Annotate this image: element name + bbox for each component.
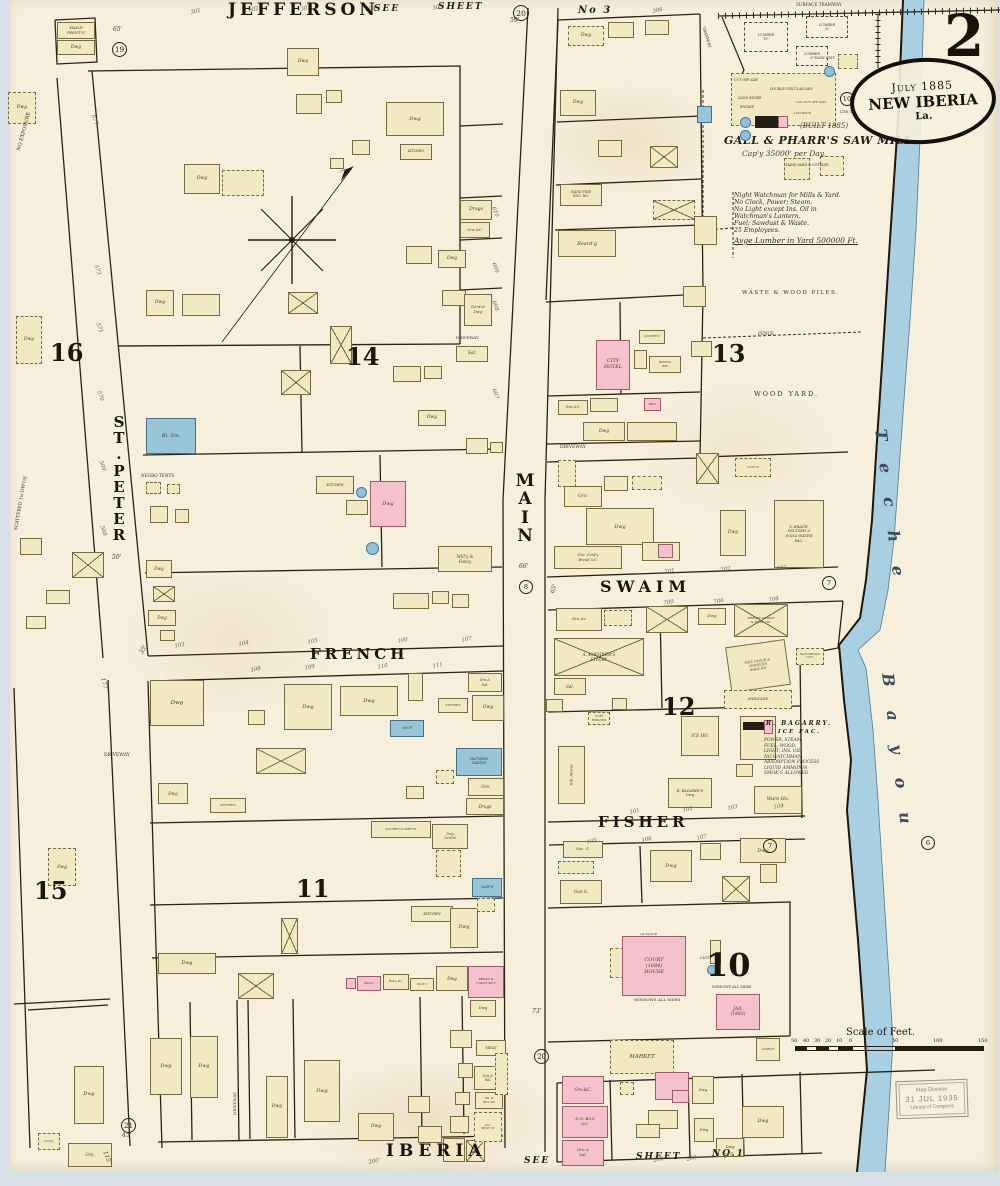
scale-bar-segment — [817, 1046, 828, 1051]
building: KITCHEN — [639, 330, 665, 344]
building-label: SHOP — [391, 721, 423, 736]
building: LUMBER6' — [806, 16, 848, 38]
street-name: JEFFERSON — [228, 0, 379, 20]
building-label: MATTRESSMAKING — [457, 749, 501, 775]
building — [612, 698, 627, 710]
building-label: LUMBER6' — [807, 17, 847, 37]
building: Gro.&Sal. — [468, 673, 502, 692]
building-label: Dwg — [75, 1067, 103, 1123]
carriage-house: CARR'GE — [756, 1038, 780, 1061]
reference-circle: 7 — [763, 839, 777, 853]
building — [558, 460, 576, 487]
building-label: Bak'g Ho. — [384, 975, 408, 989]
building-label: KITCHEN — [401, 145, 431, 159]
building-label: Dwg — [58, 41, 94, 54]
building: Drugs — [466, 798, 504, 815]
street-name: FISHER — [598, 813, 689, 831]
building — [406, 786, 424, 799]
building: Gro.&C. — [558, 400, 588, 415]
cistern-icon — [740, 117, 751, 128]
millinery-fancy-store: Mill'y &Fancy — [438, 546, 492, 572]
scale-bar-segment — [940, 1046, 984, 1051]
block-number: 16 — [50, 338, 83, 367]
building: Gro.&c — [556, 608, 602, 631]
building — [558, 861, 594, 874]
building — [477, 898, 495, 912]
building — [175, 509, 189, 523]
building — [658, 544, 673, 558]
building-label: ICE HO. — [682, 717, 718, 755]
building — [288, 292, 318, 314]
building — [700, 843, 721, 860]
building — [150, 506, 168, 523]
building: Dwg — [586, 508, 654, 545]
building: Kitch'n — [410, 978, 434, 991]
map-label: ICE FAC. — [778, 729, 821, 736]
building: KITCHEN — [400, 144, 432, 160]
building — [248, 710, 265, 725]
building — [160, 630, 175, 641]
building — [490, 442, 503, 453]
building — [450, 1116, 469, 1133]
building-label: KITCHEN — [439, 699, 467, 712]
cistern-icon — [356, 487, 367, 498]
map-label: 66' — [519, 563, 528, 571]
ice-house: ICE HO. — [681, 716, 719, 756]
building — [326, 90, 342, 103]
building-label: Dwg — [371, 482, 405, 526]
building: Gro.&C. — [562, 1076, 604, 1104]
building-label: SALT, FLOUR &SHINGLESWARE HO. — [726, 640, 790, 692]
building — [691, 341, 712, 357]
building-label: Dwg — [159, 784, 187, 803]
building-label: Dwg — [341, 687, 397, 715]
map-label: NEGRO TENTS — [141, 473, 174, 478]
building — [452, 594, 469, 608]
scale-bar-segment — [806, 1046, 817, 1051]
building-label: Dwg — [437, 967, 467, 990]
building: Dwg — [304, 1060, 340, 1122]
saw-mill-notes: Night Watchman for Mills & Yard.No Clock… — [734, 192, 858, 245]
market: MARKET — [610, 1040, 674, 1074]
building: Sal. — [456, 346, 488, 362]
building-label: Dwg — [147, 291, 173, 315]
building-label: SHINGLES — [725, 691, 791, 708]
building: Dwg — [650, 850, 692, 882]
map-label: SEE — [524, 1156, 550, 1167]
building-label: Gun S. — [561, 881, 601, 903]
wood-yard-label: WOOD YARD. — [754, 390, 819, 398]
building-label: A. KOEHNER'SLIVERY — [555, 639, 643, 675]
building: Dwg — [694, 1118, 714, 1142]
building-label: Dwg — [9, 93, 35, 123]
boarding-house: Board'g — [558, 230, 616, 257]
building-label: COTT'G — [736, 459, 770, 476]
map-label: ENGINE — [740, 105, 754, 109]
building — [608, 22, 634, 38]
building: KITCHEN & SERV'TS — [371, 821, 431, 838]
building: Dwg — [386, 102, 444, 136]
map-label: DOUBLE CIRCULAR SAW — [770, 87, 812, 91]
map-label: WINDOWS ALL SIDES — [712, 985, 751, 989]
scale-number: 0 — [849, 1038, 852, 1044]
scale-number: 10 — [836, 1038, 842, 1044]
building-label: CARP'R — [473, 879, 501, 896]
private-stable-warehouse: PRIVATE STABLE& WARE HO. — [734, 604, 788, 637]
jail: JAIL(1883) — [716, 994, 760, 1030]
building-label: PRIVATE STABLE& WARE HO. — [735, 605, 787, 636]
scale-number: 40 — [803, 1038, 809, 1044]
reference-circle: 7 — [822, 576, 836, 590]
building-label: Dwg — [471, 1001, 495, 1016]
hand-printing: HANDPRINT'G — [57, 22, 95, 39]
building-label: Vac. G. — [564, 842, 602, 857]
map-label: 65' — [113, 26, 122, 34]
building — [604, 610, 632, 626]
building: Gro.&Sal. — [562, 1140, 604, 1166]
building — [722, 876, 750, 902]
building-label: Gro.&c — [557, 609, 601, 630]
reference-circle: 21 — [121, 1118, 136, 1133]
building-label: COURT(1884)HOUSE — [623, 937, 685, 995]
building: Dwg — [470, 1000, 496, 1017]
grocery-confectionery: Gro. Conf'yBread &C. — [554, 546, 622, 569]
scale-number: 30 — [814, 1038, 820, 1044]
koehner-livery: A. KOEHNER'SLIVERY — [554, 638, 644, 676]
building — [632, 476, 662, 490]
carpenter-shop: CARP'R — [472, 878, 502, 897]
block-number: 12 — [662, 692, 695, 721]
building — [634, 350, 647, 369]
building-label: Dwg — [651, 851, 691, 881]
building — [281, 370, 311, 395]
building: BK'Y — [644, 398, 661, 411]
building — [256, 748, 306, 774]
building — [408, 1096, 430, 1113]
scale-bar-segment — [839, 1046, 852, 1051]
building: Dwg — [742, 1106, 784, 1138]
bayou-water — [839, 0, 924, 1172]
bagarry-ice-factory-name: R. BAGARRY. — [766, 720, 832, 728]
reference-circle: 6 — [921, 836, 935, 850]
building-label: R. BAGARRY'SDwg — [669, 779, 711, 807]
building — [20, 538, 42, 555]
building-label: Dent'stDwg — [465, 295, 491, 325]
building: Dwg — [8, 92, 36, 124]
building — [408, 673, 423, 701]
building: Dwg — [184, 164, 220, 194]
cistern-icon — [740, 130, 751, 141]
building-label: Dwg — [721, 511, 745, 555]
building-label: CARR'GE — [757, 1039, 779, 1060]
building: KITCHEN — [438, 698, 468, 713]
building — [393, 593, 429, 609]
building-label: Dwg — [439, 251, 465, 267]
blacksmith-shop: Bl. Sm. — [146, 418, 196, 454]
building-label: Dwg — [561, 91, 595, 115]
building — [650, 146, 678, 168]
street-name: ST.PETER — [106, 414, 132, 544]
bread-cakes-bakery: BREAD &CAKES BK'Y — [468, 966, 504, 998]
street-name: MAIN — [512, 472, 538, 545]
scale-title: Scale of Feet. — [846, 1027, 915, 1038]
salt-flour-shingles-warehouse: SALT, FLOUR &SHINGLESWARE HO. — [725, 639, 791, 693]
court-house: COURT(1884)HOUSE — [622, 936, 686, 996]
building-label: HAND FIREENG. HO. — [561, 185, 601, 205]
building-label: Drugs — [461, 201, 491, 219]
reference-circle: 19 — [112, 42, 127, 57]
building — [222, 170, 264, 196]
building: Gro.MEAT ST. — [474, 1112, 502, 1142]
building-label: LUMBER10' — [745, 23, 787, 51]
scale-bar-segment — [795, 1046, 806, 1051]
building-label: KITCHEN — [412, 907, 452, 921]
reference-circle: 20 — [534, 1049, 549, 1064]
building: Dwg — [438, 250, 466, 268]
building-label: DININGRM — [650, 357, 680, 372]
building-label: Dwg — [305, 1061, 339, 1121]
building — [432, 591, 449, 604]
building — [352, 140, 370, 155]
building-label: Kitch'n — [411, 979, 433, 990]
street-name: SWAIM — [600, 577, 691, 596]
building — [466, 438, 488, 454]
building-label: BREAD &CAKES BK'Y — [469, 967, 503, 997]
building-label: SH. &BILL'DS — [476, 1093, 502, 1108]
building — [694, 216, 717, 245]
building: KITCHEN — [210, 798, 246, 813]
building: Dwg — [358, 1113, 394, 1141]
building-label: Dwg — [147, 561, 171, 577]
building: Gro. — [468, 778, 504, 796]
building-label: Dwg — [419, 411, 445, 425]
building — [696, 453, 719, 484]
building-label: Dwg — [191, 1037, 217, 1097]
sanborn-map: HANDPRINT'GDwgDwgDwgDwgDwgKITCHENDwgDwgD… — [0, 0, 1000, 1186]
building — [645, 20, 669, 35]
building-label: Gro. — [469, 779, 503, 795]
building: Dwg — [266, 1076, 288, 1138]
building: Dwg — [16, 316, 42, 364]
building — [436, 850, 461, 877]
building-label: Gro. Conf'yBread &C. — [555, 547, 621, 568]
building — [546, 699, 563, 712]
building-label: Dwg — [695, 1119, 713, 1141]
building-label: Gro.&Sal. — [469, 674, 501, 691]
cistern-icon — [366, 542, 379, 555]
building — [838, 54, 858, 69]
building: Sal. — [554, 678, 586, 695]
building — [627, 422, 677, 441]
building: DwgDent'st — [432, 824, 468, 849]
building — [436, 770, 454, 784]
building — [346, 978, 356, 989]
map-label: SURFACE TRAMWAY — [796, 2, 842, 7]
building: SHOP — [390, 720, 424, 737]
building — [450, 1030, 472, 1048]
building-label: Bl. Sm. — [147, 419, 195, 453]
building — [683, 286, 706, 307]
building: HAND SHINGLECOTT. — [796, 648, 824, 665]
building-label: Dwg — [693, 1077, 713, 1103]
map-label: 1st FLOOR — [640, 933, 657, 937]
building-label: Dwg — [285, 685, 331, 729]
building — [590, 398, 618, 412]
library-stamp: Map Division 31 JUL 1935 Library of Cong… — [895, 1079, 968, 1119]
building-label: BK'Y — [645, 399, 660, 410]
building-label: Board'g — [559, 231, 615, 256]
building-label: BAK'G — [358, 977, 380, 990]
building-label: Dwg — [151, 681, 203, 725]
building — [636, 1124, 660, 1138]
building — [697, 106, 712, 123]
building-label: Dwg — [151, 1039, 181, 1094]
building — [672, 1090, 689, 1103]
map-label: CUT OFF SAW — [734, 78, 758, 82]
building — [281, 918, 298, 954]
building: Dwg — [57, 40, 95, 55]
dentist-dwelling: Dent'stDwg — [464, 294, 492, 326]
building: BAK'G — [357, 976, 381, 991]
map-label: (BUILT 1885) — [800, 122, 848, 131]
map-label: DRIVEWAY — [456, 335, 479, 340]
building — [46, 590, 70, 604]
building: (OLD) — [38, 1133, 60, 1150]
building: COTT'G — [735, 458, 771, 477]
scale-bar-segment — [828, 1046, 839, 1051]
building-label: Gro.MEAT ST. — [475, 1113, 501, 1141]
building: Dwg — [340, 686, 398, 716]
block-number: 14 — [346, 342, 379, 371]
map-label: LOG CUT OFF SAW — [796, 101, 826, 105]
building — [393, 366, 421, 382]
pink-dwelling: Dwg — [370, 481, 406, 527]
drug-store: Drugs — [460, 200, 492, 220]
building-label: Sal. — [457, 347, 487, 361]
building: Dwg — [472, 695, 504, 721]
building: DININGRM — [649, 356, 681, 373]
map-label: 45' — [122, 1132, 131, 1140]
building — [238, 973, 274, 999]
building: Dwg — [148, 610, 176, 626]
stamp-line: Library of Congress — [897, 1103, 967, 1112]
map-linework — [0, 0, 1000, 1186]
building — [442, 290, 466, 306]
map-label: LOG DECK — [794, 112, 811, 116]
building: Dwg — [720, 510, 746, 556]
building — [778, 116, 788, 128]
building-label: Sal. — [555, 679, 585, 694]
building-label: MARKET — [611, 1041, 673, 1073]
building-label: HAND SHINGLECOTT. — [797, 649, 823, 664]
building: Bak'g Ho. — [383, 974, 409, 990]
building-label: Dwg — [451, 909, 477, 947]
building-label: Gro. — [565, 487, 601, 506]
building — [784, 158, 810, 180]
building-label: Drugs — [467, 799, 503, 814]
building-label: (OLD) — [39, 1134, 59, 1149]
map-label: TANK CIST. — [814, 56, 835, 60]
building — [424, 366, 442, 379]
mattress-making: MATTRESSMAKING — [456, 748, 502, 776]
building-label: Dwg — [584, 423, 624, 440]
building-label: Dwg — [587, 509, 653, 544]
building-label: Dwg — [387, 103, 443, 135]
reference-circle: 20 — [513, 5, 529, 21]
map-label: Cap'y 35000' per Day. — [742, 149, 825, 158]
building: Gro.&C. — [460, 222, 490, 238]
building: Gun S. — [560, 880, 602, 904]
map-label: 50' — [112, 554, 121, 562]
scale-bar-segment — [896, 1046, 940, 1051]
building-label: Dwg — [159, 954, 215, 973]
building: Dwg — [158, 783, 188, 804]
building-label: CITYHOTEL — [597, 341, 629, 389]
building-label: Dwg — [267, 1077, 287, 1137]
building-label: Dwg — [473, 696, 503, 720]
building-label: Dwg — [149, 611, 175, 625]
scale-number: 50 — [892, 1038, 898, 1044]
building — [604, 476, 628, 491]
block-number: 15 — [34, 876, 67, 905]
map-label: POWER; STEAM.FUEL; WOOD.LIGHT; INS. OIL.… — [764, 738, 819, 777]
building — [646, 606, 688, 633]
map-label: GANG EDGER — [738, 96, 761, 100]
building — [346, 500, 368, 515]
map-label: DRIVEWAY — [232, 1092, 237, 1115]
block-number: 13 — [712, 339, 745, 368]
scale-number: 50 — [791, 1038, 797, 1044]
scale-number: 100 — [933, 1038, 943, 1044]
building: Dwg — [190, 1036, 218, 1098]
building — [406, 246, 432, 264]
building — [620, 1082, 634, 1095]
building — [146, 482, 161, 494]
building: D.G. B&S&C. — [562, 1106, 608, 1138]
building-label: Dwg — [743, 1107, 783, 1137]
building-label: Gro.&C. — [559, 401, 587, 414]
building: Dwg — [560, 90, 596, 116]
building: Dwg — [583, 422, 625, 441]
building — [743, 722, 764, 730]
building — [72, 552, 104, 578]
map-label: DRIVEWAY — [560, 445, 586, 451]
building-label: KITCHEN — [317, 477, 353, 493]
building: KITCHEN — [411, 906, 453, 922]
building: SHINGLES — [724, 690, 792, 709]
building: KITCHEN — [316, 476, 354, 494]
building — [760, 864, 777, 883]
map-label: SHEET — [438, 2, 483, 13]
building: Dwg — [74, 1066, 104, 1124]
building — [458, 1063, 473, 1078]
building — [182, 294, 220, 316]
building: TO BEREMOVED — [588, 712, 610, 725]
building: Dwg — [284, 684, 332, 730]
building-label: Gro.&C. — [563, 1077, 603, 1103]
building: LUMBER10' — [744, 22, 788, 52]
erath-soda-water-factory: V. ERATH.SELTZER &SODA WATERFAC. — [774, 500, 824, 568]
building — [330, 158, 344, 169]
map-label: HAND SAWS & COTTAGE — [786, 163, 828, 167]
hand-fire-engine-house: HAND FIREENG. HO. — [560, 184, 602, 206]
bagarry-dwelling: R. BAGARRY'SDwg — [668, 778, 712, 808]
building-label: Dwg — [185, 165, 219, 193]
building: Dwg — [418, 410, 446, 426]
building-label: KITCHEN — [211, 799, 245, 812]
building-label: Dwg — [359, 1114, 393, 1140]
building — [167, 484, 180, 494]
